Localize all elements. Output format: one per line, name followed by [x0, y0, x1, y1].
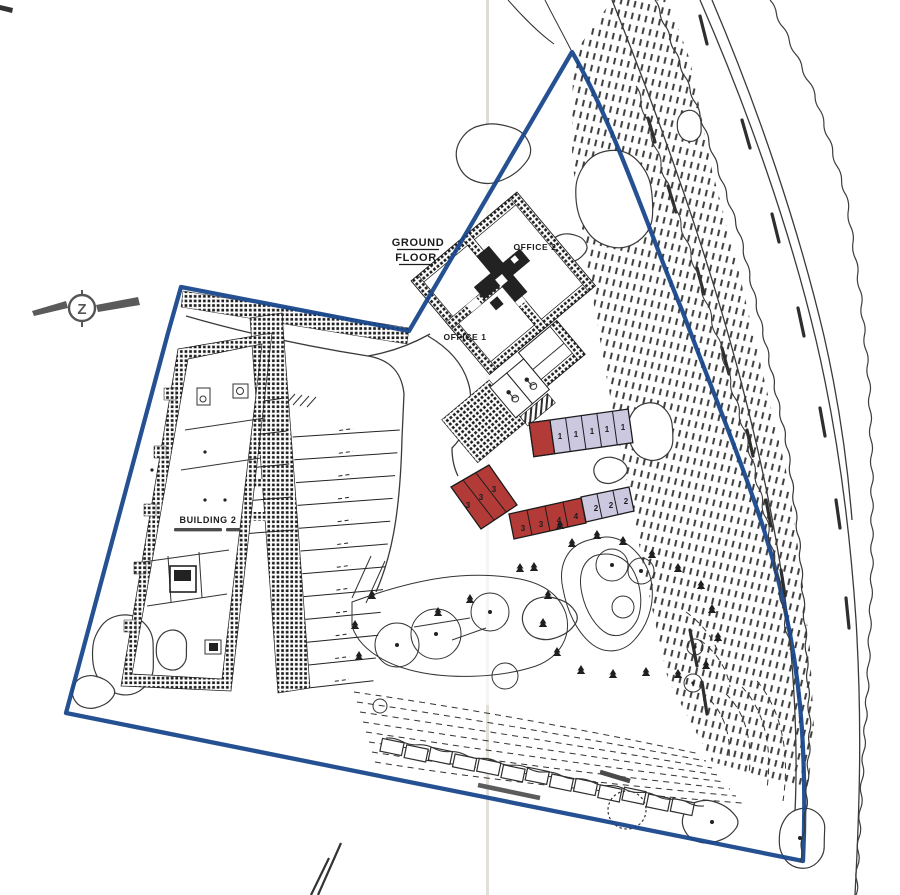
- building2-subtext-illegible: [174, 528, 240, 531]
- ground-floor-label-line2: FLOOR: [395, 252, 437, 264]
- unit-number: 1: [574, 430, 579, 439]
- tree-blob: [677, 110, 701, 141]
- tree-blob: [156, 630, 186, 670]
- unit-number: 3: [479, 493, 484, 502]
- north-arrow-letter: Z: [77, 301, 86, 318]
- building2-label: BUILDING 2: [179, 515, 236, 525]
- unit-number: 1: [621, 423, 626, 432]
- unit-number: 1: [605, 425, 610, 434]
- unit-number: 3: [521, 524, 526, 533]
- site-plan-drawing: BUILDING 2: [0, 0, 900, 895]
- site-plan-page: BUILDING 2: [0, 0, 900, 895]
- office1-label: OFFICE 1: [443, 332, 486, 342]
- unit-number: 4: [574, 512, 579, 521]
- unit-number: 2: [624, 497, 629, 506]
- office2-label: OFFICE 2: [513, 242, 556, 252]
- unit-number: 3: [492, 485, 497, 494]
- unit-number: 2: [594, 504, 599, 513]
- unit-number: 1: [590, 427, 595, 436]
- unit-number: 3: [466, 501, 471, 510]
- ground-floor-label-line1: GROUND: [392, 237, 445, 249]
- unit-number: 1: [558, 432, 563, 441]
- unit-number: 2: [609, 501, 614, 510]
- unit-number: 3: [539, 520, 544, 529]
- tree-blob: [628, 403, 673, 461]
